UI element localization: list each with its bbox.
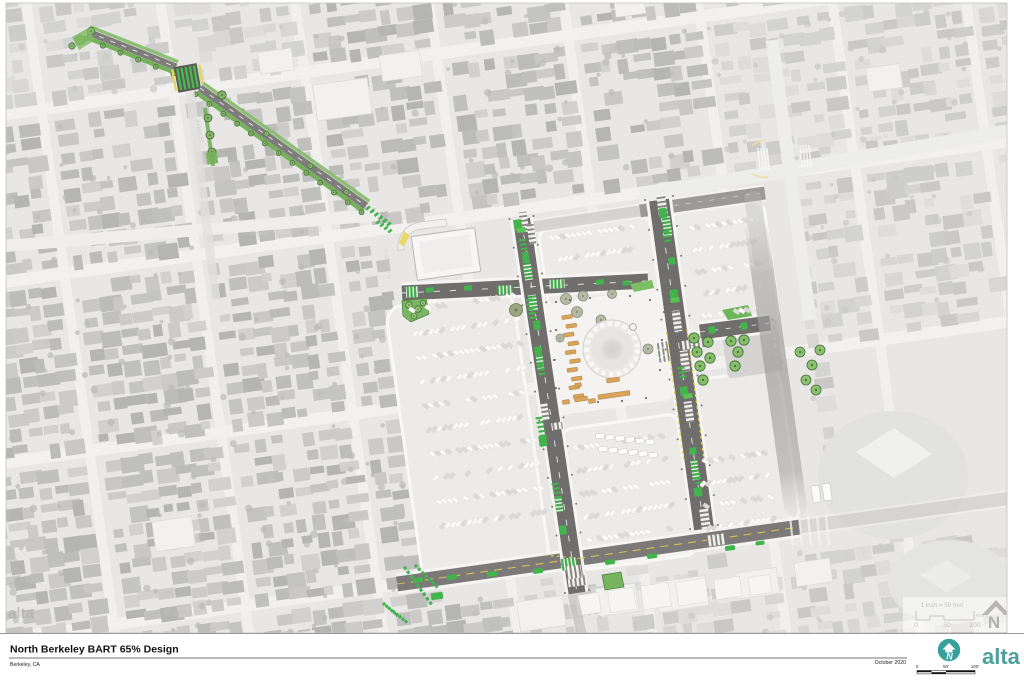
- svg-text:N: N: [988, 613, 1000, 632]
- svg-text:alta: alta: [982, 644, 1021, 669]
- svg-text:50': 50': [943, 664, 949, 669]
- svg-text:100': 100': [971, 664, 980, 669]
- svg-text:Berkeley, CA: Berkeley, CA: [10, 662, 40, 668]
- svg-text:North Berkeley BART 65% Design: North Berkeley BART 65% Design: [10, 644, 179, 656]
- svg-text:0: 0: [916, 664, 919, 669]
- svg-text:0: 0: [914, 622, 918, 629]
- svg-text:alta: alta: [8, 605, 35, 622]
- svg-text:1 inch = 50 feet: 1 inch = 50 feet: [921, 602, 964, 609]
- svg-text:50: 50: [943, 622, 951, 629]
- svg-text:N: N: [946, 652, 953, 662]
- svg-text:October 2020: October 2020: [875, 660, 907, 666]
- svg-text:100: 100: [969, 622, 980, 629]
